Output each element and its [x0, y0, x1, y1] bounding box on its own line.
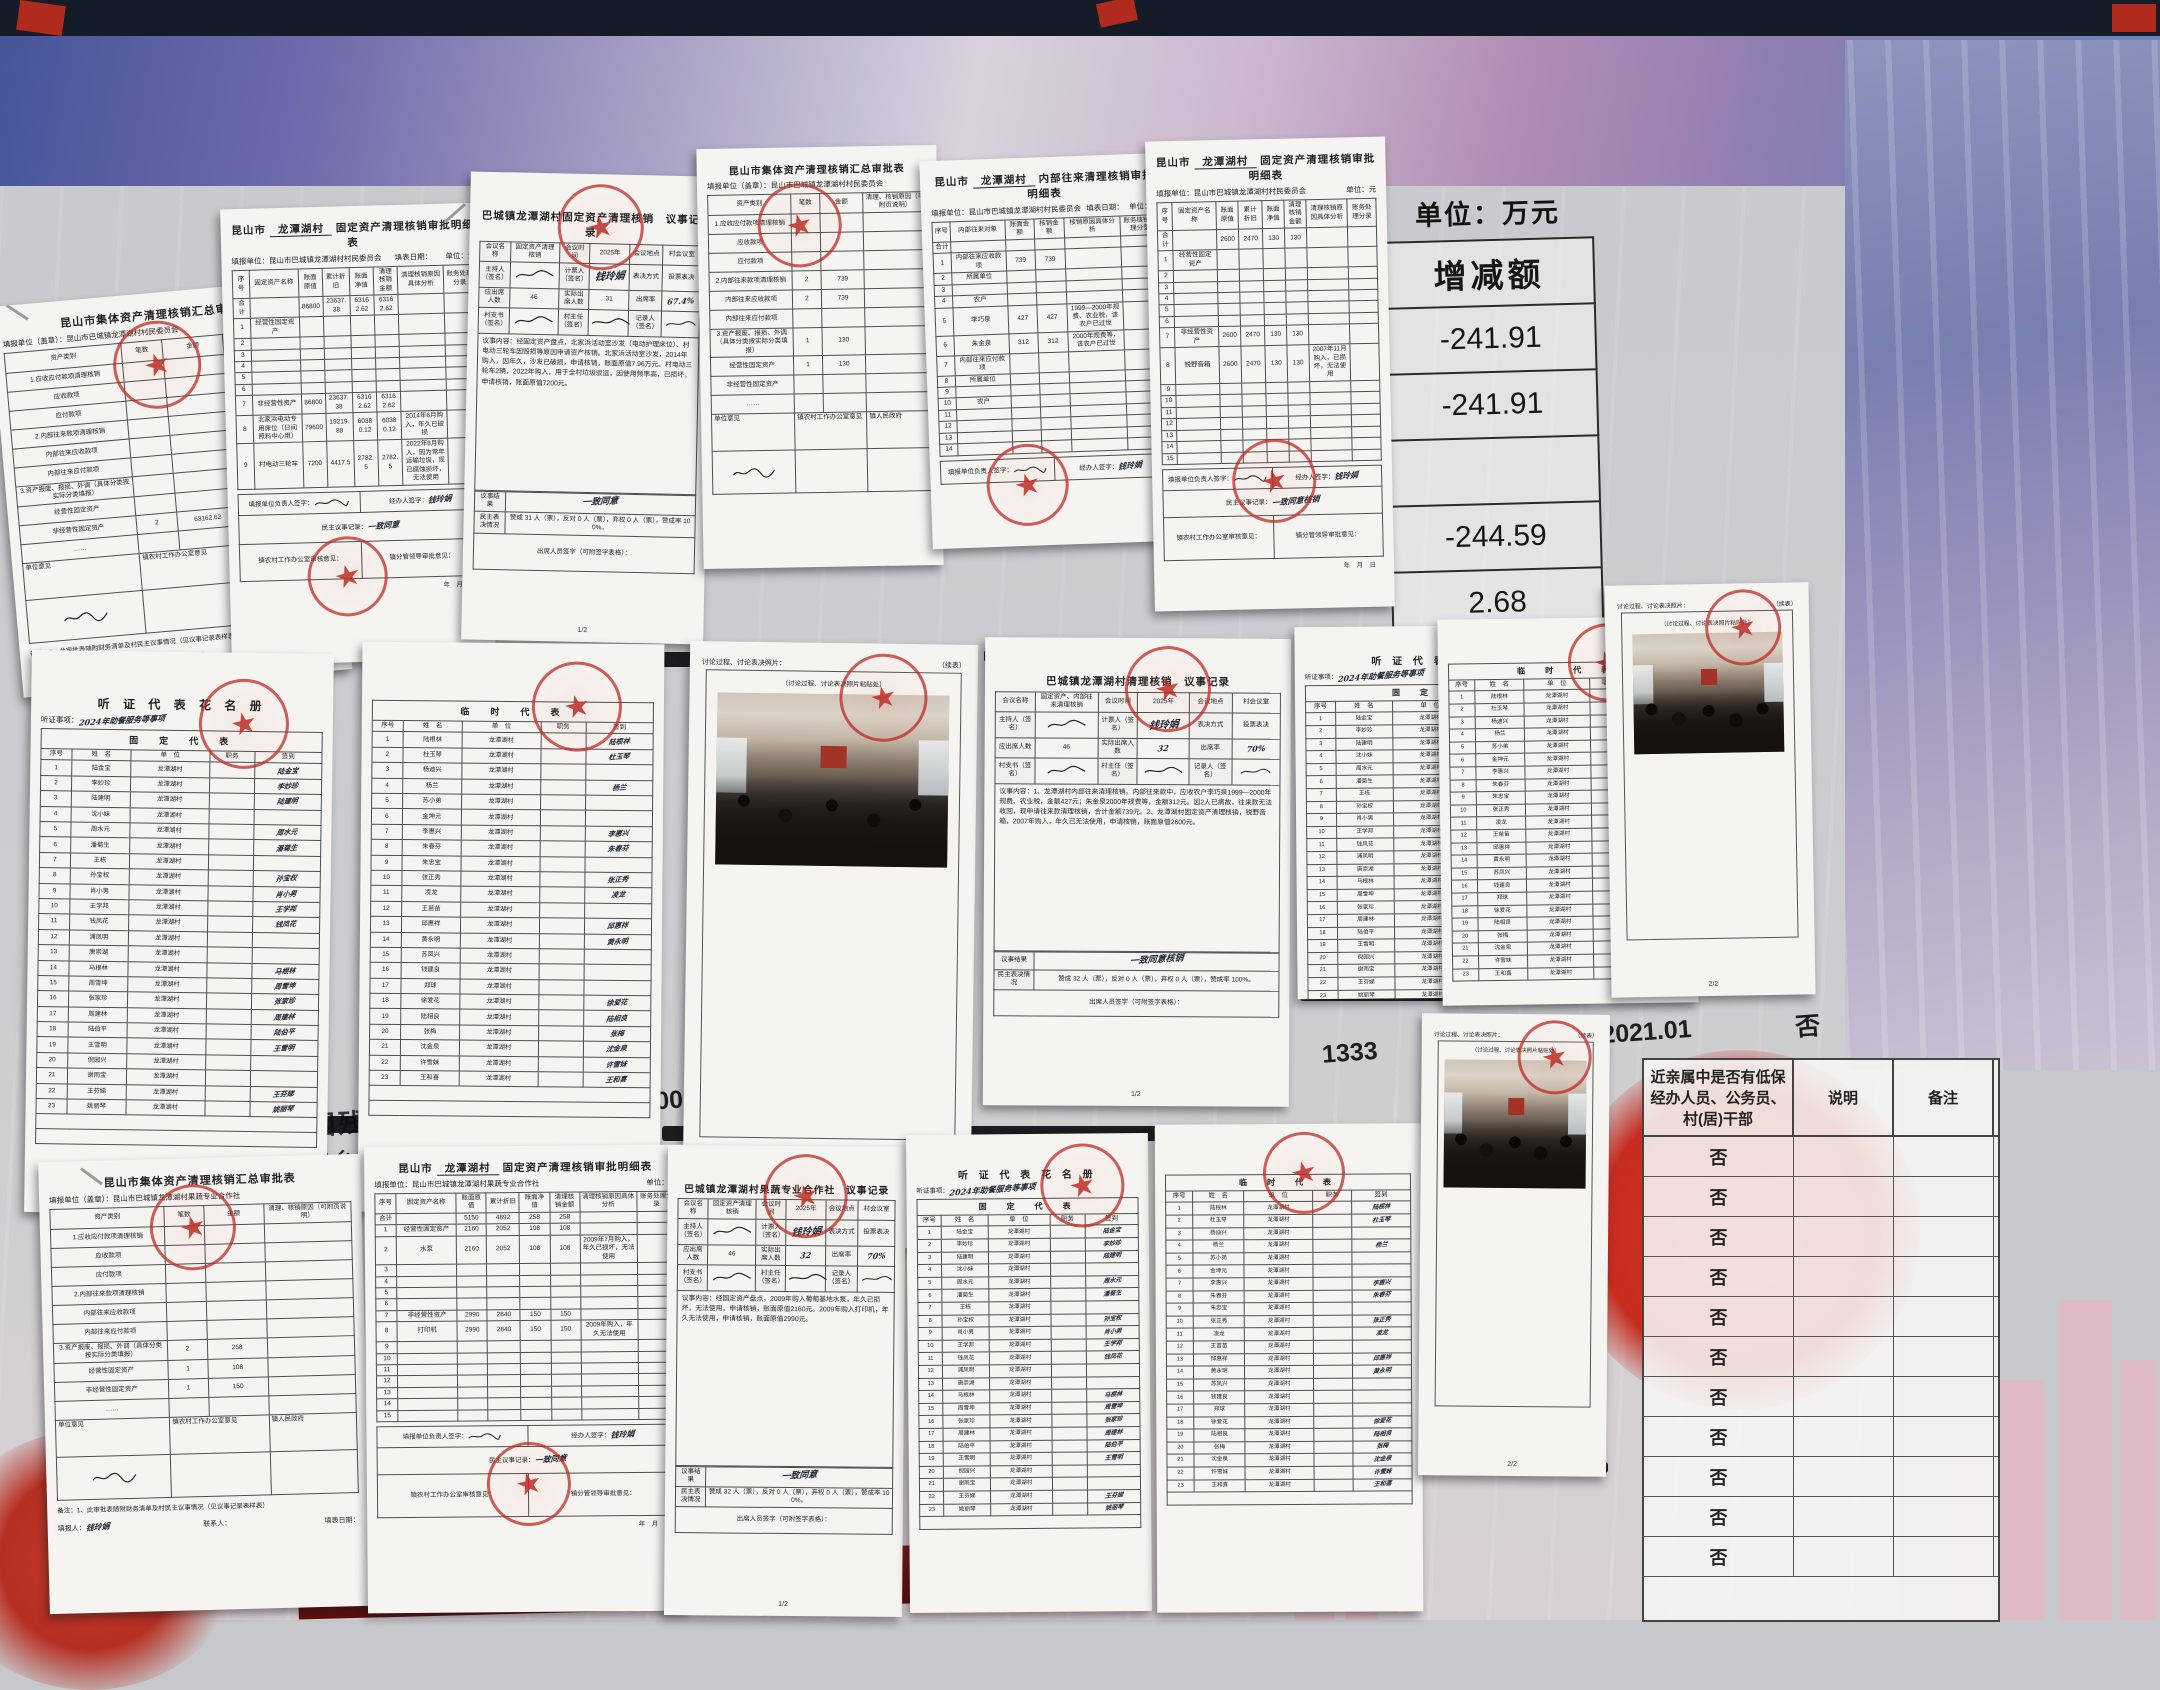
rep-signin — [1353, 1403, 1412, 1416]
relative-empty-cell — [1794, 1137, 1894, 1176]
net-value — [1263, 248, 1285, 268]
seq: 10 — [938, 398, 957, 410]
reason — [581, 1340, 638, 1352]
seq: 22 — [920, 1491, 944, 1504]
amount: 739 — [821, 289, 865, 309]
rep-unit: 龙潭湖村 — [989, 1364, 1051, 1377]
rep-signin: 马根林 — [1087, 1389, 1140, 1402]
reason — [265, 1259, 353, 1280]
rep-duty — [209, 778, 254, 794]
asset-name — [1173, 230, 1217, 251]
rep-duty — [1313, 1214, 1352, 1227]
writeoff-amount — [550, 1275, 580, 1287]
relative-empty-cell — [1894, 1257, 1994, 1296]
writeoff-amount — [551, 1409, 581, 1421]
rep-unit: 龙潭湖村 — [1245, 1378, 1314, 1391]
field-label: 记录人（签名） — [1189, 759, 1232, 785]
seq: 4 — [235, 361, 252, 373]
rep-signin — [1087, 1477, 1140, 1490]
writeoff-amount — [1286, 302, 1308, 314]
rep-signin: 李妙珍 — [254, 778, 322, 794]
rep-name: 周建林 — [943, 1428, 990, 1441]
seq: 6 — [1450, 754, 1476, 767]
rep-signin: 杨兰 — [1352, 1239, 1411, 1252]
writeoff-amount — [1286, 314, 1308, 326]
rep-signin: 王雪明 — [250, 1040, 318, 1056]
field-label: 村支书（签名） — [995, 758, 1035, 784]
count — [794, 375, 823, 394]
seq: 10 — [1307, 826, 1337, 839]
depreciation — [325, 381, 352, 393]
orig-value — [1218, 315, 1240, 327]
relative-row: 否 — [1644, 1497, 1998, 1537]
seq: 11 — [39, 914, 70, 930]
rep-signin — [1085, 1263, 1138, 1276]
rep-unit: 龙潭湖村 — [460, 994, 539, 1010]
field-label: 出席率 — [825, 1246, 858, 1266]
rep-name: 张梅 — [1194, 1441, 1246, 1454]
rep-signin: 张正秀 — [1352, 1315, 1411, 1328]
relative-empty-cell — [1894, 1537, 1994, 1576]
amount — [206, 1319, 267, 1340]
filler-label: 填报人：钱玲娟 — [58, 1521, 110, 1533]
seq: 2 — [1166, 1215, 1193, 1228]
roster-body: 1陆根林龙潭湖村陆根林2杜玉琴龙潭湖村杜玉琴3杨迪兴龙潭湖村4杨兰龙潭湖村杨兰5… — [1166, 1201, 1413, 1492]
seq: 1 — [1306, 713, 1336, 726]
rep-signin — [1353, 1340, 1412, 1353]
depreciation: 2840 — [487, 1321, 520, 1341]
seq: 8 — [1306, 801, 1336, 814]
det-body: 合计260024701301301经营性固定资产234567非经营性资产2600… — [1157, 227, 1381, 465]
rep-unit: 龙潭湖村 — [459, 1056, 538, 1072]
net-value — [1264, 303, 1286, 315]
seal-star-icon: ★ — [139, 344, 176, 386]
rep-unit: 龙潭湖村 — [462, 779, 541, 795]
rep-unit: 龙潭湖村 — [989, 1314, 1051, 1327]
rep-signin: 黄永明 — [584, 934, 652, 950]
column-header: 序号 — [232, 270, 250, 299]
vote-value: 赞成 32 人（票），反对 0 人（票），弃权 0 人（票），赞成率 100%。 — [706, 1486, 893, 1508]
rep-signin: 王学邦 — [1086, 1338, 1139, 1351]
seq: 8 — [1166, 1291, 1193, 1304]
rep-name: 杨兰 — [1475, 728, 1525, 741]
asset-name: 打印机 — [397, 1321, 457, 1341]
relative-row: 否 — [1644, 1217, 1998, 1257]
rep-name: 浦凤明 — [69, 930, 128, 946]
seq: 16 — [919, 1416, 943, 1429]
rep-signin: 沈金泉 — [1353, 1453, 1412, 1466]
rep-name: 沈小妹 — [71, 807, 130, 823]
relative-empty-cell — [1894, 1217, 1994, 1256]
net-value: 258 — [519, 1212, 549, 1224]
rep-name: 朱春芬 — [402, 840, 461, 856]
rep-name: 徐爱花 — [401, 994, 460, 1010]
rep-name: 钱凤花 — [69, 914, 128, 930]
seq: 23 — [36, 1099, 67, 1115]
seq: 6 — [371, 809, 402, 825]
net-value — [520, 1298, 550, 1310]
rep-signin — [584, 903, 652, 919]
column-header: 单 位 — [988, 1214, 1050, 1226]
field-label: 实际出席人数 — [1098, 738, 1138, 758]
asset-name: 经营性固定资产 — [396, 1224, 456, 1236]
rep-unit: 龙潭湖村 — [990, 1490, 1052, 1503]
rep-unit: 龙潭湖村 — [988, 1289, 1050, 1302]
writeoff-amount: 130 — [1287, 345, 1310, 382]
rep-name: 郑球 — [401, 978, 460, 994]
count: 1 — [169, 1378, 209, 1398]
orig-value: 86800 — [301, 394, 326, 415]
rep-unit: 龙潭湖村 — [989, 1339, 1051, 1352]
rep-name: 杨兰 — [1193, 1240, 1245, 1253]
signature-scribble — [63, 608, 110, 626]
rep-signin: 陆金宝 — [254, 763, 322, 779]
rep-duty — [205, 1086, 250, 1102]
rep-name: 苏小弟 — [1193, 1253, 1245, 1266]
orig-value — [300, 336, 325, 348]
orig-value — [458, 1398, 488, 1410]
rep-duty — [1050, 1263, 1085, 1276]
seq: 1 — [1166, 1202, 1193, 1215]
rep-duty — [208, 855, 253, 871]
rep-name: 王学邦 — [1336, 826, 1393, 839]
result-label: 议事结果 — [474, 491, 505, 512]
doc-temp-roster-3: ★ 临 时 代 表 序号姓 名单 位职务签到 1陆根林龙潭湖村陆根林2杜玉琴龙潭… — [1155, 1123, 1424, 1612]
asset-name — [397, 1287, 457, 1299]
opinion-unit: 单位意见 — [711, 413, 795, 451]
asset-name: 经营性固定资产 — [250, 317, 299, 338]
orig-value — [458, 1352, 488, 1364]
seq: 6 — [1166, 1265, 1193, 1278]
roster-row: 2杜玉琴龙潭湖村杜玉琴 — [1166, 1214, 1411, 1228]
seq: 17 — [919, 1428, 943, 1441]
rep-duty — [1313, 1239, 1352, 1252]
contact-label: 联系人： — [203, 1518, 231, 1530]
column-header: 清理核销金额 — [549, 1192, 579, 1212]
leader-sign-label: 填报单位负责人签字： — [377, 1426, 528, 1448]
rep-unit: 龙潭湖村 — [130, 838, 209, 854]
depreciation — [323, 316, 350, 337]
secretary-signature — [708, 1265, 756, 1291]
column-header: 序号 — [932, 222, 951, 242]
asset-name: 锐野音箱 — [1175, 347, 1220, 385]
rep-signin: 周建林 — [1087, 1426, 1140, 1439]
photo-header: 讨论过程、讨论表决照片： — [1434, 1029, 1504, 1039]
seq: 15 — [377, 1410, 398, 1422]
rep-name: 陆根林 — [403, 732, 462, 748]
net-value — [352, 381, 377, 393]
seq: 8 — [937, 375, 956, 387]
seq: 23 — [1308, 990, 1338, 999]
column-header: 累计折旧 — [322, 268, 349, 297]
audience — [715, 775, 948, 868]
entry — [1349, 301, 1378, 313]
seq: 9 — [39, 883, 70, 899]
orig-value — [458, 1364, 488, 1376]
seq: 13 — [38, 945, 69, 961]
asset-category: 经营性固定资产 — [710, 356, 794, 376]
rep-duty — [539, 933, 584, 949]
field-label: 实际出席人数 — [756, 1245, 787, 1265]
seq: 19 — [1167, 1429, 1194, 1442]
seq: 1 — [41, 760, 72, 776]
relative-empty-cell — [1794, 1177, 1894, 1216]
seal-star-icon: ★ — [1287, 1153, 1322, 1194]
attendee-sign-label: 出席人员签字（可附签字表格）： — [675, 1506, 892, 1534]
asset-name: 非经营性资产 — [1175, 327, 1219, 348]
rep-unit: 龙潭湖村 — [130, 807, 209, 823]
writeoff-amount: 130 — [1284, 228, 1306, 248]
secretary-signature — [1035, 758, 1098, 784]
seal-star-icon: ★ — [584, 207, 618, 247]
hearing-item: 听证事项：2024年助餐服务等事项 — [41, 714, 165, 727]
seq: 合计 — [233, 299, 251, 319]
seq: 16 — [37, 991, 68, 1007]
rep-unit: 龙潭湖村 — [990, 1465, 1052, 1478]
asset-name: 北家浜电动专用床位（日间照料中心用） — [253, 414, 302, 444]
rep-signin: 周雪坤 — [1087, 1401, 1140, 1414]
depreciation — [488, 1375, 521, 1387]
orig-value — [299, 317, 324, 338]
rep-signin: 姚丽琴 — [1088, 1502, 1141, 1515]
net-value — [520, 1286, 550, 1298]
continued-mark: （续表） — [938, 660, 966, 670]
orig-value — [1221, 440, 1243, 452]
field-label: 主持人（签名） — [678, 1218, 709, 1244]
writeoff-amount: 150 — [551, 1320, 581, 1340]
seq: 7 — [39, 852, 70, 868]
rep-name: 陆金宝 — [72, 760, 131, 776]
seq: 7 — [1306, 788, 1336, 801]
counterparty: 内部往来应付款项 — [955, 354, 1010, 376]
rep-unit: 龙潭湖村 — [462, 763, 541, 779]
rep-name: 张家珍 — [68, 991, 127, 1007]
seq: 16 — [370, 963, 401, 979]
empty-cell — [795, 449, 868, 493]
orig-value: 2160 — [456, 1224, 486, 1236]
seq: 19 — [919, 1453, 943, 1466]
net-value — [521, 1409, 551, 1421]
rep-unit: 龙潭湖村 — [460, 963, 539, 979]
rep-signin — [250, 1071, 318, 1087]
amount — [822, 374, 866, 394]
seq: 1 — [375, 1225, 396, 1237]
reason — [401, 390, 448, 411]
rep-unit: 龙潭湖村 — [127, 992, 206, 1008]
seq: 11 — [918, 1353, 942, 1366]
town-check-opinion: 镇农村工作办公室审核意见： — [1163, 515, 1273, 560]
rep-name: 李惠兴 — [1193, 1278, 1245, 1291]
rep-signin: 陆伯平 — [1087, 1439, 1140, 1452]
count — [167, 1301, 207, 1321]
rep-duty — [1051, 1402, 1086, 1415]
depreciation — [487, 1298, 520, 1310]
writeoff-amount: 258 — [550, 1212, 580, 1224]
empty-cell — [171, 1452, 271, 1498]
rep-signin: 许雪妹 — [1353, 1466, 1412, 1479]
rep-duty — [1052, 1452, 1087, 1465]
reason — [1065, 247, 1122, 269]
asset-name — [397, 1341, 457, 1353]
reason — [1071, 438, 1128, 451]
rep-name: 苏凤兴 — [401, 947, 460, 963]
rep-duty — [1313, 1353, 1352, 1366]
table-row: 15 — [377, 1408, 678, 1422]
net-value: 63162.62 — [349, 295, 374, 316]
red-paper-scrap — [2112, 4, 2156, 32]
rep-unit: 龙潭湖村 — [989, 1402, 1051, 1415]
rep-duty — [539, 964, 584, 980]
rep-duty — [1313, 1227, 1352, 1240]
page-number: 1/2 — [983, 1090, 1289, 1099]
seq: 20 — [1167, 1442, 1194, 1455]
column-header: 账面净值 — [519, 1192, 549, 1212]
relative-row: 否 — [1644, 1297, 1998, 1337]
rep-unit: 龙潭湖村 — [988, 1276, 1050, 1289]
field-label: 记录人（签名） — [825, 1266, 858, 1292]
opinion-gov: 镇人民政府 — [867, 411, 931, 449]
change-value: -241.91 — [1387, 369, 1599, 440]
writeoff-amount: 312 — [1038, 332, 1068, 353]
asset-name — [1177, 406, 1221, 418]
seq: 4 — [1159, 293, 1175, 305]
counterparty: 朱金泉 — [954, 334, 1009, 356]
rep-unit: 龙潭湖村 — [130, 823, 209, 839]
rep-duty — [1313, 1265, 1352, 1278]
relative-no-value: 否 — [1644, 1137, 1794, 1176]
rep-duty — [538, 1041, 583, 1057]
count — [166, 1282, 206, 1302]
net-value — [521, 1386, 551, 1398]
projection-screen — [1700, 669, 1717, 685]
net-value — [521, 1352, 551, 1364]
rep-name: 周建林 — [68, 1007, 127, 1023]
rep-name: 杜玉琴 — [1193, 1215, 1245, 1228]
seq: 13 — [370, 916, 401, 932]
hearing-item: 听证事项：2024年助餐服务等事项 — [1305, 670, 1424, 682]
rep-name: 周水元 — [942, 1277, 989, 1290]
opinion-town: 镇农村工作办公室意见 — [170, 1415, 270, 1455]
rep-signin: 陆伯平 — [251, 1025, 319, 1041]
rep-duty — [205, 1070, 250, 1086]
meeting-place-value: 村会议室 — [663, 245, 701, 266]
rep-unit: 龙潭湖村 — [126, 1100, 205, 1116]
depreciation: 2470 — [1241, 326, 1265, 346]
seq: 23 — [369, 1070, 400, 1086]
depreciation — [488, 1386, 521, 1398]
count — [794, 394, 823, 413]
seq: 19 — [1308, 940, 1338, 953]
seq: 8 — [1450, 779, 1476, 792]
rep-duty — [209, 793, 254, 809]
reason — [398, 294, 445, 315]
rep-name: 苏小弟 — [402, 794, 461, 810]
seq: 3 — [934, 284, 953, 296]
net-value: 108 — [520, 1235, 550, 1264]
seq: 7 — [1166, 1278, 1193, 1291]
seq: 1 — [1158, 251, 1174, 271]
seq: 12 — [939, 421, 958, 433]
column-header: 账面原值 — [456, 1193, 486, 1213]
rep-name: 沈金泉 — [1194, 1454, 1246, 1467]
reason — [864, 249, 928, 269]
depreciation: 23637.38 — [325, 393, 352, 414]
seq: 10 — [371, 870, 402, 886]
attend-rate-value: 70% — [1232, 739, 1281, 759]
rep-duty — [1051, 1326, 1086, 1339]
rep-signin — [584, 964, 652, 980]
rep-unit: 龙潭湖村 — [1245, 1479, 1314, 1492]
reason — [866, 354, 930, 374]
rep-name: 肖小男 — [70, 884, 129, 900]
counterparty: 李巧泉 — [953, 305, 1008, 335]
seq: 合计 — [375, 1214, 396, 1226]
audience — [1633, 689, 1784, 754]
seq: 3 — [40, 791, 71, 807]
rep-name: 陆相良 — [1478, 917, 1528, 930]
rep-signin — [585, 764, 653, 780]
rep-name: 唐崇湖 — [69, 945, 128, 961]
relative-rows: 否否否否否否否否否否否 — [1644, 1137, 1998, 1577]
writeoff-amount: 60380.12 — [377, 411, 402, 440]
writeoff-amount: 2782.5 — [378, 440, 403, 486]
empty-row — [369, 1101, 650, 1118]
seq: 19 — [370, 1009, 401, 1025]
seq: 22 — [1308, 977, 1338, 990]
rep-signin: 张梅 — [583, 1026, 651, 1042]
rep-name: 潘菊生 — [71, 837, 130, 853]
column-header: 序号 — [375, 1194, 396, 1214]
reason — [1311, 449, 1353, 461]
column-header: 累计折旧 — [486, 1193, 519, 1213]
rep-name: 徐爱花 — [1194, 1416, 1246, 1429]
doc-summary-approval-coop: ★ 昆山市集体资产清理核销汇总审批表 填报单位（盖章）：昆山市巴城镇龙潭湖村果蔬… — [38, 1154, 372, 1614]
rep-name: 王苗苗 — [1477, 829, 1527, 842]
doc-asset-detail-coop: 昆山市 龙潭湖村 固定资产清理核销审批明细表 填报单位：昆山市巴城镇龙潭湖村果蔬… — [364, 1145, 690, 1614]
entry — [1350, 312, 1379, 324]
rep-unit: 龙潭湖村 — [1525, 790, 1591, 804]
seq: 3 — [917, 1252, 941, 1265]
rep-unit: 龙潭湖村 — [130, 777, 209, 793]
rep-duty — [539, 887, 584, 903]
seq: 4 — [1166, 1240, 1193, 1253]
unit-yuan: 单位：元 — [1346, 184, 1376, 196]
rep-name: 周水元 — [71, 822, 130, 838]
rep-unit: 龙潭湖村 — [1525, 740, 1591, 754]
rep-duty — [540, 810, 585, 826]
entry — [1350, 323, 1379, 343]
reason: 2014年6月购入，年久已破损 — [401, 410, 448, 440]
column-header: 账面净值 — [349, 267, 374, 296]
column-header: 姓 名 — [403, 721, 462, 733]
orig-value: 2990 — [457, 1310, 487, 1322]
asset-name: 水泵 — [396, 1236, 456, 1265]
column-header: 核销原因具体分析 — [1063, 216, 1120, 238]
field-label: 出席率 — [629, 290, 663, 311]
seq: 9 — [1307, 814, 1337, 827]
seq: 2 — [1306, 725, 1336, 738]
rep-signin — [1352, 1264, 1411, 1277]
relative-empty-cell — [1894, 1497, 1994, 1536]
rep-unit: 龙潭湖村 — [1245, 1391, 1314, 1404]
relative-no-value: 否 — [1644, 1537, 1794, 1576]
seq: 13 — [1307, 864, 1337, 877]
reason — [1308, 301, 1350, 313]
rep-signin: 潘菊生 — [253, 840, 321, 856]
net-value — [351, 335, 376, 347]
asset-name — [397, 1364, 457, 1376]
seq: 3 — [1159, 282, 1175, 294]
